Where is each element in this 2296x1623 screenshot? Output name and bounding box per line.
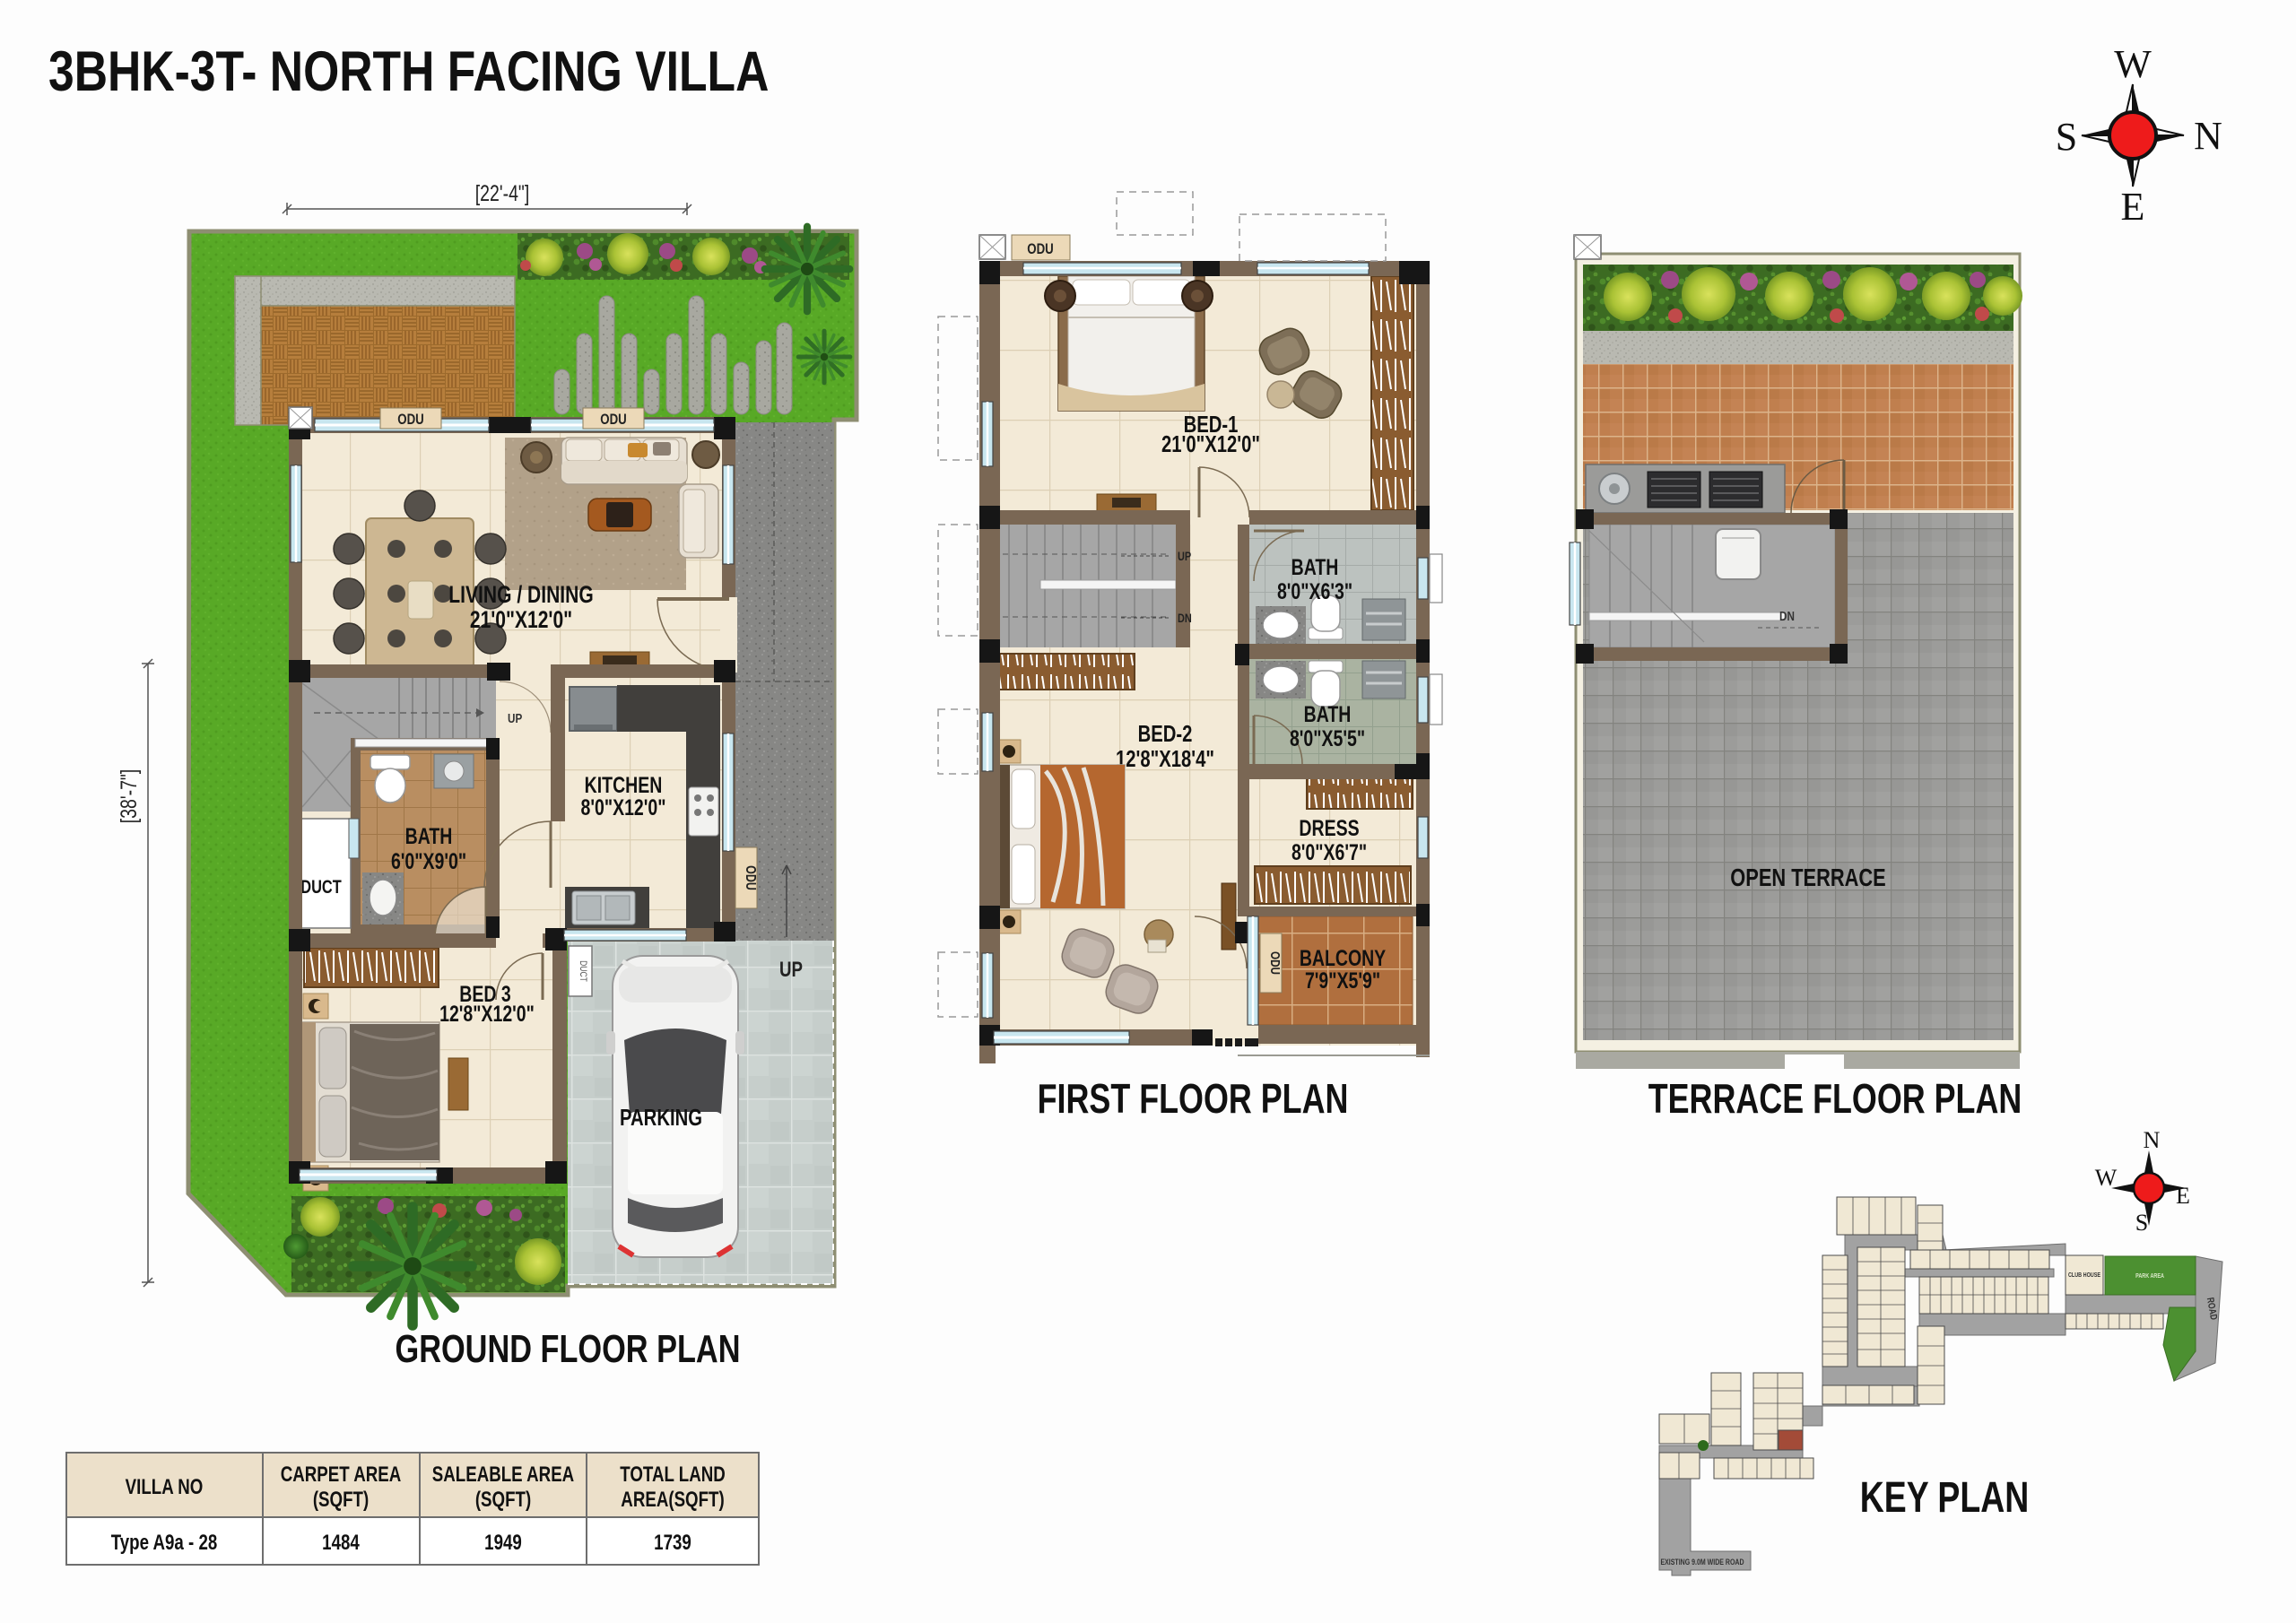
svg-text:ODU: ODU [600,412,626,429]
svg-text:1484: 1484 [322,1531,360,1555]
svg-text:12'8"X18'4": 12'8"X18'4" [1116,746,1214,772]
svg-text:S: S [2135,1210,2148,1236]
svg-text:8'0"X6'7": 8'0"X6'7" [1291,840,1367,865]
svg-text:KEY PLAN: KEY PLAN [1860,1474,2030,1523]
svg-text:SALEABLE AREA: SALEABLE AREA [432,1462,574,1487]
svg-text:DUCT: DUCT [578,960,588,982]
svg-text:LIVING / DINING: LIVING / DINING [448,582,593,609]
svg-text:UP: UP [779,958,803,982]
svg-text:DN: DN [1779,609,1795,624]
svg-text:N: N [2194,114,2222,158]
svg-text:FIRST FLOOR PLAN: FIRST FLOOR PLAN [1038,1076,1349,1122]
svg-text:E: E [2121,185,2145,229]
svg-text:ODU: ODU [1268,951,1283,975]
svg-text:ODU: ODU [743,865,759,890]
svg-text:8'0"X5'5": 8'0"X5'5" [1290,726,1365,751]
svg-text:W: W [2114,42,2152,86]
svg-text:S: S [2056,115,2077,159]
svg-text:N: N [2144,1127,2161,1153]
svg-text:1949: 1949 [484,1531,522,1555]
svg-text:GROUND FLOOR PLAN: GROUND FLOOR PLAN [396,1327,741,1371]
svg-text:8'0"X12'0": 8'0"X12'0" [581,795,666,820]
svg-text:W: W [2095,1165,2118,1191]
svg-text:DUCT: DUCT [300,876,342,897]
svg-text:BATH: BATH [1304,702,1352,727]
svg-text:CLUB HOUSE: CLUB HOUSE [2068,1271,2100,1279]
svg-text:8'0"X6'3": 8'0"X6'3" [1277,579,1352,604]
svg-text:Type A9a - 28: Type A9a - 28 [111,1531,218,1555]
svg-text:BED-2: BED-2 [1138,721,1193,747]
svg-text:BALCONY: BALCONY [1300,946,1386,971]
svg-text:ODU: ODU [397,412,423,429]
svg-text:BATH: BATH [405,824,453,849]
svg-text:21'0"X12'0": 21'0"X12'0" [1161,431,1260,457]
svg-text:21'0"X12'0": 21'0"X12'0" [470,607,572,634]
svg-text:[22'-4"]: [22'-4"] [475,181,529,206]
svg-text:PARK AREA: PARK AREA [2135,1272,2164,1280]
svg-text:7'9"X5'9": 7'9"X5'9" [1305,968,1380,994]
svg-text:PARKING: PARKING [620,1105,702,1131]
svg-text:EXISTING 9.0M WIDE ROAD: EXISTING 9.0M WIDE ROAD [1660,1558,1744,1567]
svg-text:CARPET AREA: CARPET AREA [281,1462,401,1487]
svg-text:(SQFT): (SQFT) [475,1488,531,1512]
svg-text:ODU: ODU [1027,241,1053,258]
svg-text:3BHK-3T- NORTH FACING VILLA: 3BHK-3T- NORTH FACING VILLA [48,40,769,103]
svg-text:DN: DN [1178,612,1192,626]
svg-text:1739: 1739 [654,1531,691,1555]
svg-text:(SQFT): (SQFT) [313,1488,369,1512]
svg-text:DRESS: DRESS [1299,816,1359,841]
svg-text:12'8"X12'0": 12'8"X12'0" [439,1002,535,1027]
svg-text:6'0"X9'0": 6'0"X9'0" [391,849,466,874]
svg-text:KITCHEN: KITCHEN [585,773,663,798]
svg-text:OPEN TERRACE: OPEN TERRACE [1730,864,1885,891]
svg-text:TOTAL LAND: TOTAL LAND [620,1462,725,1487]
svg-text:AREA(SQFT): AREA(SQFT) [621,1488,724,1512]
svg-text:UP: UP [1178,550,1191,564]
svg-text:UP: UP [508,711,522,726]
svg-text:[38'-7"]: [38'-7"] [117,769,142,823]
svg-text:BATH: BATH [1291,555,1339,580]
svg-text:E: E [2176,1183,2190,1209]
svg-text:TERRACE FLOOR PLAN: TERRACE FLOOR PLAN [1648,1076,2022,1122]
svg-text:VILLA NO: VILLA NO [126,1475,204,1499]
